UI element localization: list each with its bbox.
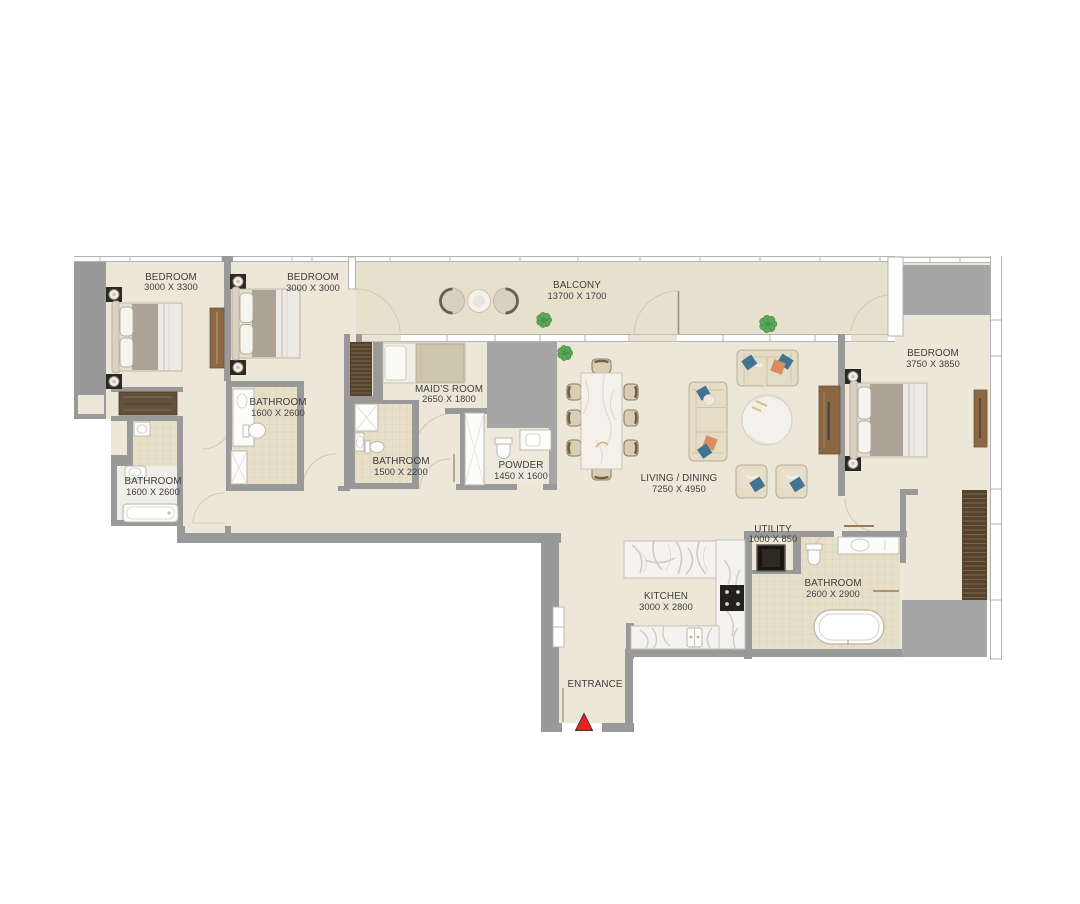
svg-text:3000 X 3000: 3000 X 3000 xyxy=(286,283,340,293)
svg-text:1600 X 2600: 1600 X 2600 xyxy=(126,487,180,497)
svg-text:1500 X 2200: 1500 X 2200 xyxy=(374,467,428,477)
svg-text:BALCONY: BALCONY xyxy=(553,280,601,291)
svg-text:3750 X 3850: 3750 X 3850 xyxy=(906,359,960,369)
svg-text:1000 X 850: 1000 X 850 xyxy=(749,534,798,544)
svg-text:1600 X 2600: 1600 X 2600 xyxy=(251,408,305,418)
svg-text:3000 X 3300: 3000 X 3300 xyxy=(144,282,198,292)
svg-text:BEDROOM: BEDROOM xyxy=(907,348,959,359)
svg-text:2650 X 1800: 2650 X 1800 xyxy=(422,394,476,404)
svg-text:ENTRANCE: ENTRANCE xyxy=(567,679,622,690)
svg-text:7250 X 4950: 7250 X 4950 xyxy=(652,484,706,494)
svg-text:BATHROOM: BATHROOM xyxy=(124,476,181,487)
svg-text:LIVING / DINING: LIVING / DINING xyxy=(641,473,718,484)
svg-text:2600 X 2900: 2600 X 2900 xyxy=(806,589,860,599)
svg-text:BATHROOM: BATHROOM xyxy=(804,578,861,589)
svg-text:POWDER: POWDER xyxy=(498,460,543,471)
svg-text:1450 X 1600: 1450 X 1600 xyxy=(494,471,548,481)
svg-text:3000 X 2800: 3000 X 2800 xyxy=(639,602,693,612)
svg-text:13700 X 1700: 13700 X 1700 xyxy=(547,291,606,301)
svg-text:KITCHEN: KITCHEN xyxy=(644,591,688,602)
svg-text:BATHROOM: BATHROOM xyxy=(249,397,306,408)
svg-text:BEDROOM: BEDROOM xyxy=(287,272,339,283)
svg-text:BATHROOM: BATHROOM xyxy=(372,456,429,467)
